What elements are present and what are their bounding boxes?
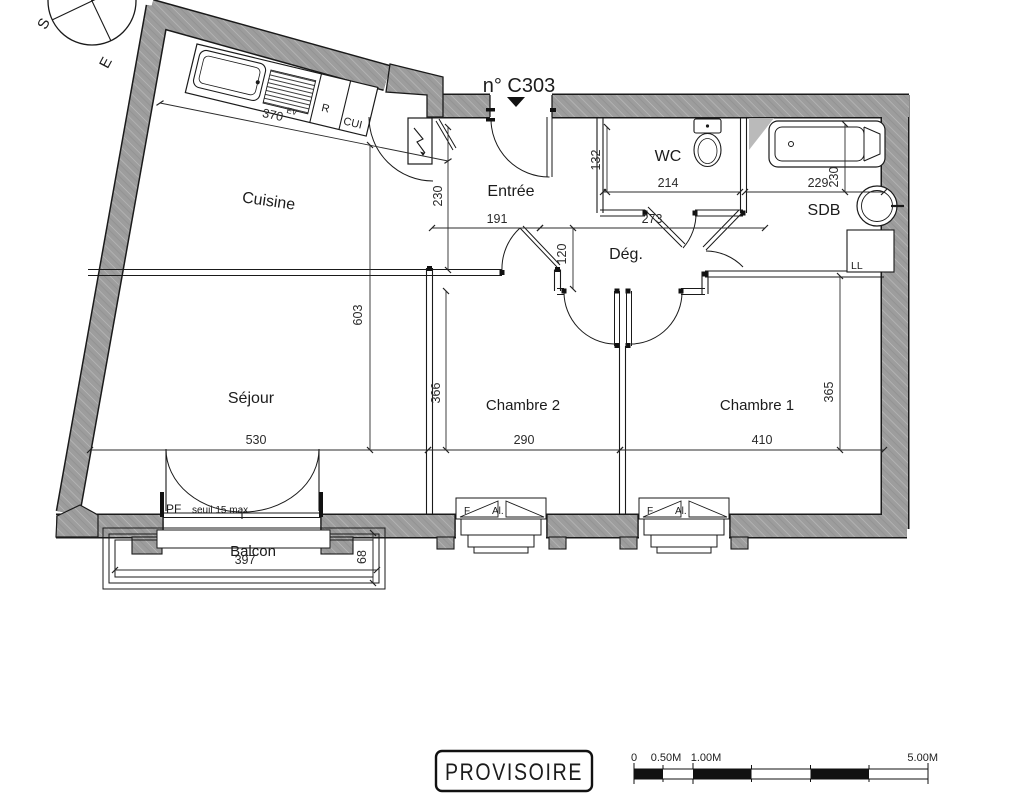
room-label-degagement: Dég. — [609, 246, 643, 263]
dim-balcon-depth: 68 — [355, 550, 369, 564]
pf-label: PF — [166, 502, 181, 516]
floor-plan-drawing: EV R CUI LL — [0, 0, 1017, 800]
entrance-door — [486, 108, 556, 177]
dim-chambre1-depth: 365 — [822, 382, 836, 403]
room-label-sdb: SDB — [808, 202, 841, 219]
sdb-door — [703, 210, 743, 267]
unit-number: n° C303 — [483, 75, 556, 97]
dim-entree-width: 191 — [487, 212, 508, 226]
dim-wc-height: 132 — [589, 150, 603, 171]
scale-500m: 5.00M — [907, 752, 938, 764]
compass-east: E — [96, 54, 116, 71]
dim-sdb-depth: 230 — [827, 167, 841, 188]
interior-partitions — [88, 117, 884, 515]
washing-machine-label: LL — [851, 260, 863, 272]
dim-chambre2-depth: 366 — [429, 383, 443, 404]
bathtub — [769, 121, 885, 167]
wall-end-caps — [163, 95, 730, 537]
dim-chambre2-width: 290 — [514, 433, 535, 447]
dim-cuisine-width: 370 — [261, 106, 284, 124]
partition-wc-sdb — [597, 117, 747, 216]
dim-deg-depth: 120 — [555, 244, 569, 265]
wall-junctions — [427, 211, 746, 349]
dim-chambre1-width: 410 — [752, 433, 773, 447]
scale-0: 0 — [631, 752, 637, 764]
chambre1-window-al: Al. — [675, 506, 687, 517]
partition-chambres-divider — [620, 346, 626, 515]
chambre1-door — [627, 291, 683, 346]
scale-100m: 1.00M — [691, 752, 722, 764]
toilet — [694, 119, 721, 167]
chambre1-window-f: F — [647, 506, 653, 517]
partition-deg-south — [555, 270, 885, 295]
wall-jog — [386, 64, 443, 117]
entry-marker-icon — [507, 97, 525, 107]
room-label-cuisine: Cuisine — [241, 189, 296, 213]
room-label-chambre2: Chambre 2 — [486, 397, 560, 414]
chambre2-window-f: F — [464, 506, 470, 517]
chambre2-door — [564, 291, 620, 346]
sejour-door — [502, 226, 560, 271]
dim-sejour-width: 530 — [246, 433, 267, 447]
provisional-stamp: PROVISOIRE — [436, 751, 592, 791]
room-label-entree: Entrée — [487, 183, 534, 200]
scale-bar: 0 0.50M 1.00M 5.00M — [631, 752, 938, 784]
dim-wc-width: 214 — [658, 176, 679, 190]
room-label-balcon: Balcon — [230, 543, 276, 560]
scale-050m: 0.50M — [651, 752, 682, 764]
dim-deg-width: 273 — [642, 212, 663, 226]
floor-plan-page: EV R CUI LL — [0, 0, 1017, 800]
room-label-wc: WC — [655, 148, 682, 165]
compass-north-wedge — [73, 0, 132, 1]
dim-sdb-width: 229 — [808, 176, 829, 190]
compass-rose: S E — [34, 0, 136, 71]
room-label-chambre1: Chambre 1 — [720, 397, 794, 414]
stamp-text: PROVISOIRE — [445, 759, 583, 786]
chambre2-window-al: Al. — [492, 506, 504, 517]
room-label-sejour: Séjour — [228, 390, 275, 407]
partition-sejour-north — [88, 270, 502, 276]
dim-entree-depth: 230 — [431, 186, 445, 207]
threshold-note: seuil 15 max — [192, 505, 248, 516]
dim-left-zone-height: 603 — [351, 305, 365, 326]
